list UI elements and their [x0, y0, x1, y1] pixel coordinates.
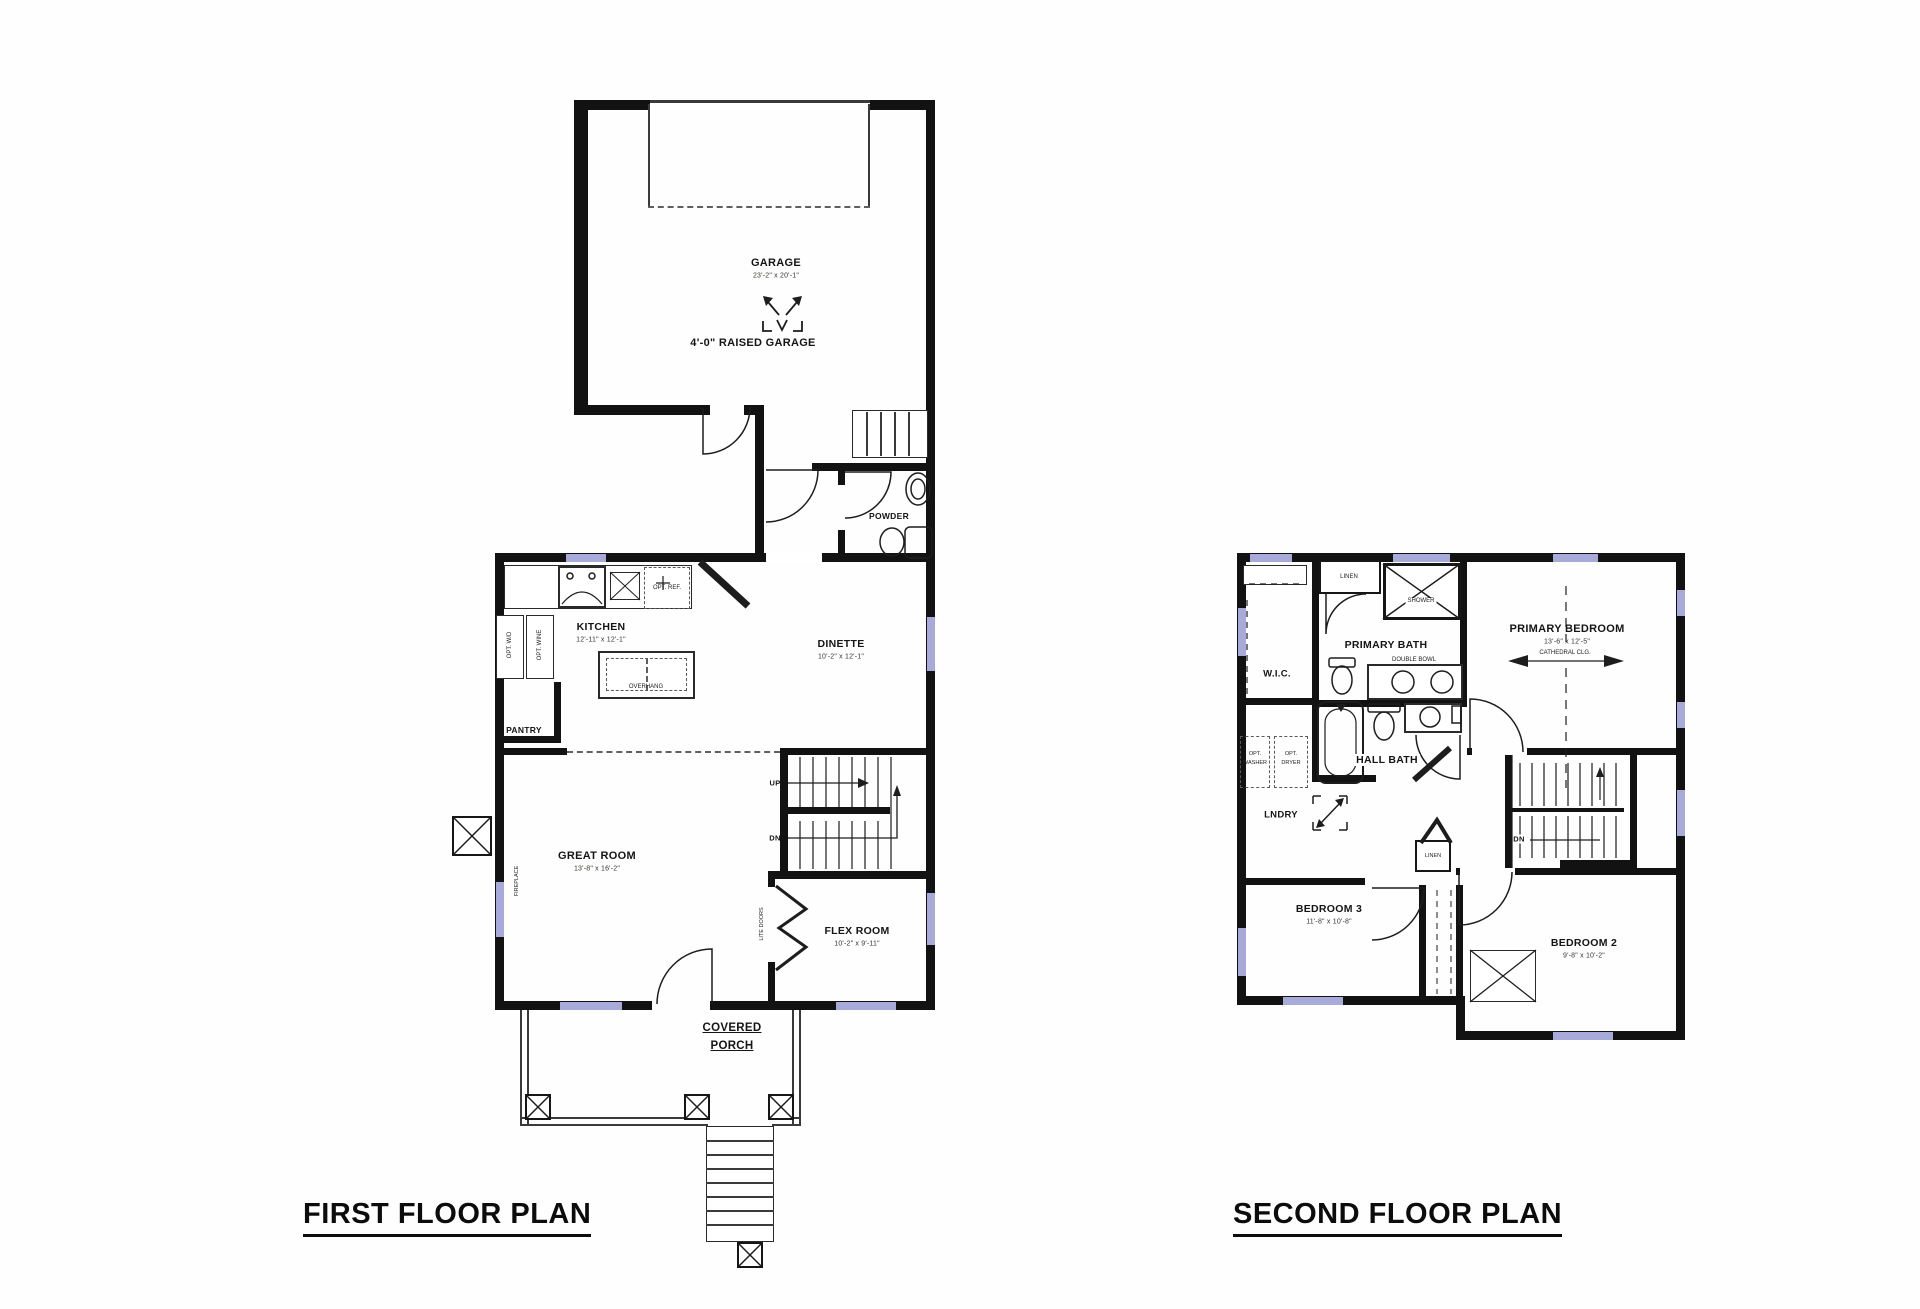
wall-segment	[780, 755, 788, 878]
window-symbol	[1553, 1032, 1613, 1040]
hall-opening	[766, 553, 822, 562]
stair-divider	[1512, 808, 1624, 812]
wall-segment	[1515, 868, 1685, 875]
step-tread	[706, 1182, 774, 1184]
garage-door-jamb	[868, 104, 870, 208]
window-symbol	[1393, 554, 1450, 562]
step-tread	[706, 1210, 774, 1212]
wall-segment	[780, 748, 935, 755]
wall-segment	[768, 871, 935, 879]
attic-access-icon	[763, 296, 802, 331]
wall-segment	[1419, 885, 1426, 996]
step-tread	[706, 1168, 774, 1170]
wall-segment	[574, 405, 710, 415]
garage-door-jamb	[648, 104, 650, 208]
door-arc	[1459, 872, 1512, 925]
door-arc	[1372, 888, 1424, 940]
bathtub-icon	[1318, 702, 1363, 783]
wall-segment	[1456, 885, 1463, 996]
double-bowl-vanity	[1367, 664, 1463, 700]
dn-arrow	[788, 794, 897, 838]
window-symbol	[1677, 790, 1685, 836]
raised-garage-note: 4'-0" RAISED GARAGE	[690, 337, 815, 349]
step-tread	[866, 412, 868, 456]
toilet-tank	[1329, 658, 1355, 667]
wall-segment	[1312, 775, 1376, 782]
cathedral-clg-label: CATHEDRAL CLG.	[1537, 650, 1592, 656]
great-room-label: GREAT ROOM	[558, 850, 636, 862]
window-symbol	[1238, 608, 1246, 656]
toilet-bowl	[1374, 712, 1394, 740]
wall-segment	[1237, 698, 1317, 705]
dn-label: DN	[769, 834, 780, 843]
double-bowl-label: DOUBLE BOWL	[1390, 657, 1438, 663]
lndry-label: LNDRY	[1264, 810, 1298, 821]
opt-washer-label-2: WASHER	[1243, 760, 1267, 766]
wall-segment	[1505, 755, 1512, 868]
bedroom2-closet	[1470, 950, 1536, 1002]
flex-room-dims: 10'-2" x 9'-11"	[834, 941, 880, 948]
wall-segment	[1312, 705, 1319, 782]
step-tread	[880, 412, 882, 456]
step-tread	[706, 1154, 774, 1156]
wall-segment	[926, 100, 935, 562]
wall-segment	[495, 748, 567, 755]
wall-segment	[1467, 748, 1472, 755]
window-symbol	[496, 882, 504, 937]
overhang-label: OVERHANG	[629, 684, 663, 690]
wall-segment	[838, 471, 845, 485]
hall-bath-label: HALL BATH	[1354, 754, 1420, 766]
covered-porch-label-1: COVERED	[703, 1022, 762, 1034]
wall-segment	[1456, 868, 1460, 875]
window-symbol	[927, 893, 935, 945]
up-label: UP	[769, 779, 780, 788]
stair-arrowhead	[1596, 767, 1604, 777]
primary-bath-label: PRIMARY BATH	[1345, 639, 1428, 651]
opt-wd-label: OPT. W/D	[507, 632, 513, 659]
porch-rail	[520, 1010, 522, 1126]
wall-segment	[768, 962, 775, 1010]
fireplace-icon	[452, 816, 492, 856]
stair-rail	[1560, 860, 1632, 868]
dn-arrowhead	[893, 785, 901, 796]
wall-segment	[554, 682, 561, 742]
opt-ref-label: OPT. REF.	[653, 585, 681, 591]
porch-rail	[520, 1124, 708, 1126]
sink-basin	[911, 479, 925, 499]
powder-label: POWDER	[869, 511, 909, 521]
garage-door-dashed-line	[648, 206, 870, 208]
flex-room-label: FLEX ROOM	[824, 925, 889, 937]
garage-door-header	[650, 100, 870, 103]
door-arc	[1470, 699, 1523, 752]
bathtub-basin	[1325, 709, 1356, 776]
shower-label: SHOWER	[1406, 598, 1437, 604]
toilet-bowl	[880, 528, 904, 556]
window-symbol	[1250, 554, 1292, 562]
ceiling-break-line	[567, 751, 780, 753]
garage-label: GARAGE	[751, 257, 801, 269]
window-symbol	[927, 617, 935, 671]
stair-treads	[800, 757, 891, 869]
door-arc	[766, 470, 818, 522]
stair-treads	[1512, 755, 1616, 868]
lite-doors-symbol	[776, 886, 806, 970]
wall-segment	[574, 100, 650, 110]
great-room-dims: 13'-8" x 16'-2"	[574, 866, 620, 873]
window-symbol	[566, 554, 606, 562]
porch-rail	[772, 1124, 801, 1126]
bedroom2-dims: 9'-8" x 10'-2"	[1563, 953, 1605, 960]
range-icon	[558, 566, 606, 608]
porch-rail	[799, 1010, 801, 1126]
window-symbol	[560, 1002, 622, 1010]
first-floor-title: FIRST FLOOR PLAN	[303, 1198, 591, 1237]
window-symbol	[1677, 702, 1685, 728]
porch-post	[768, 1094, 794, 1120]
linen-bath-label: LINEN	[1340, 574, 1358, 580]
hall-bath-vanity	[1404, 703, 1462, 733]
wall-segment	[1312, 560, 1319, 705]
covered-porch-label-2: PORCH	[710, 1040, 753, 1052]
wall-segment	[495, 553, 935, 562]
opt-wine-label: OPT. WINE	[537, 630, 543, 661]
wall-segment	[755, 405, 764, 562]
fixtures-overlay	[0, 0, 1920, 1309]
step-tread	[706, 1140, 774, 1142]
primary-bedroom-label: PRIMARY BEDROOM	[1509, 623, 1624, 635]
window-symbol	[1553, 554, 1598, 562]
door-arc	[703, 407, 750, 454]
angled-wall	[700, 562, 748, 606]
bedroom3-label: BEDROOM 3	[1296, 903, 1362, 915]
kitchen-dims: 12'-11" x 12'-1"	[576, 637, 626, 644]
step-tread	[706, 1224, 774, 1226]
arrowhead-right	[1604, 655, 1624, 667]
garage-steps	[852, 410, 928, 458]
porch-post	[525, 1094, 551, 1120]
wall-segment	[1237, 996, 1465, 1005]
step-tread	[894, 412, 896, 456]
garage-dims: 23'-2" x 20'-1"	[753, 273, 799, 280]
porch-post	[684, 1094, 710, 1120]
wall-segment	[1237, 878, 1365, 885]
dinette-label: DINETTE	[817, 638, 864, 650]
window-symbol	[1677, 590, 1685, 616]
step-tread	[706, 1196, 774, 1198]
bedroom3-dims: 11'-8" x 10'-8"	[1306, 919, 1352, 926]
dinette-dims: 10'-2" x 12'-1"	[818, 654, 864, 661]
window-symbol	[1238, 928, 1246, 976]
fireplace-label: FIREPLACE	[514, 866, 520, 897]
opt-dryer-label-1: OPT.	[1285, 751, 1297, 757]
bedroom2-label: BEDROOM 2	[1551, 937, 1617, 949]
pantry-label: PANTRY	[506, 725, 542, 735]
wic-label: W.I.C.	[1263, 669, 1291, 680]
lite-doors-label: LITE DOORS	[759, 907, 765, 940]
up-arrowhead	[858, 778, 869, 788]
arrowhead-left	[1508, 655, 1528, 667]
laundry-access-icon	[1313, 796, 1347, 830]
window-symbol	[836, 1002, 896, 1010]
opt-washer-label-1: OPT.	[1249, 751, 1261, 757]
stair-divider	[788, 807, 890, 814]
kitchen-label: KITCHEN	[577, 621, 626, 633]
wall-segment	[495, 736, 561, 743]
opt-dryer-label-2: DRYER	[1281, 760, 1300, 766]
second-floor-title: SECOND FLOOR PLAN	[1233, 1198, 1562, 1237]
stoop-post	[737, 1242, 763, 1268]
door-arc	[1326, 594, 1366, 634]
door-arc	[657, 949, 712, 1004]
linen-hall-label: LINEN	[1425, 853, 1441, 859]
floor-plan-sheet: GARAGE 23'-2" x 20'-1" 4'-0" RAISED GARA…	[0, 0, 1920, 1309]
shower-icon	[1383, 563, 1461, 620]
toilet-bowl	[1332, 666, 1352, 694]
dn2-label: DN	[1513, 835, 1524, 844]
wall-segment	[710, 1001, 935, 1010]
wall-segment	[1527, 748, 1685, 755]
closet-rod	[1437, 890, 1451, 994]
wall-segment	[768, 879, 775, 887]
wic-shelf	[1243, 565, 1307, 585]
step-tread	[908, 412, 910, 456]
wall-segment	[812, 463, 935, 471]
wall-segment	[1630, 755, 1637, 868]
window-symbol	[1283, 997, 1343, 1005]
kitchen-sink-icon	[610, 572, 640, 600]
wall-segment	[574, 100, 588, 415]
door-arc	[1416, 735, 1460, 779]
primary-bedroom-dims: 13'-6" x 12'-5"	[1544, 639, 1590, 646]
